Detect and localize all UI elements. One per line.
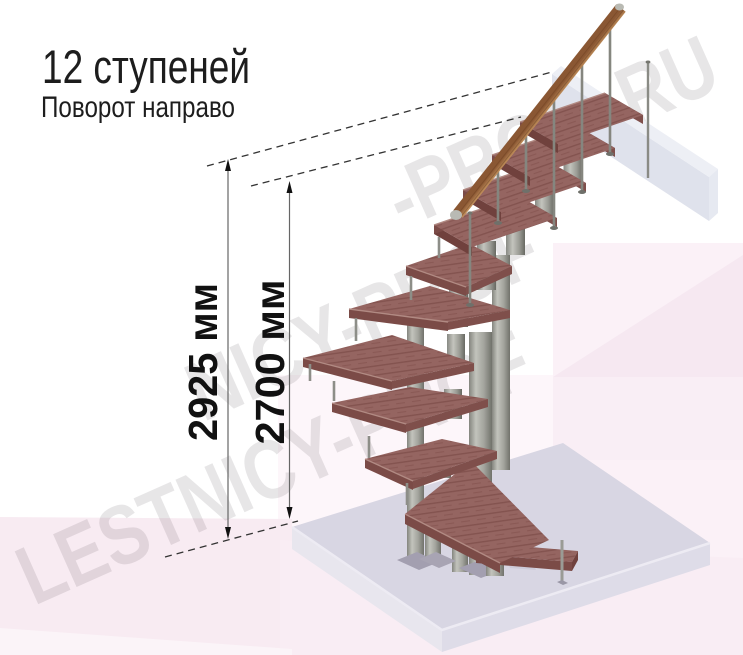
svg-text:2925 мм: 2925 мм — [180, 283, 226, 441]
svg-text:2700 мм: 2700 мм — [247, 280, 293, 445]
svg-text:12 ступеней: 12 ступеней — [42, 40, 250, 93]
svg-text:Поворот направо: Поворот направо — [41, 91, 235, 124]
